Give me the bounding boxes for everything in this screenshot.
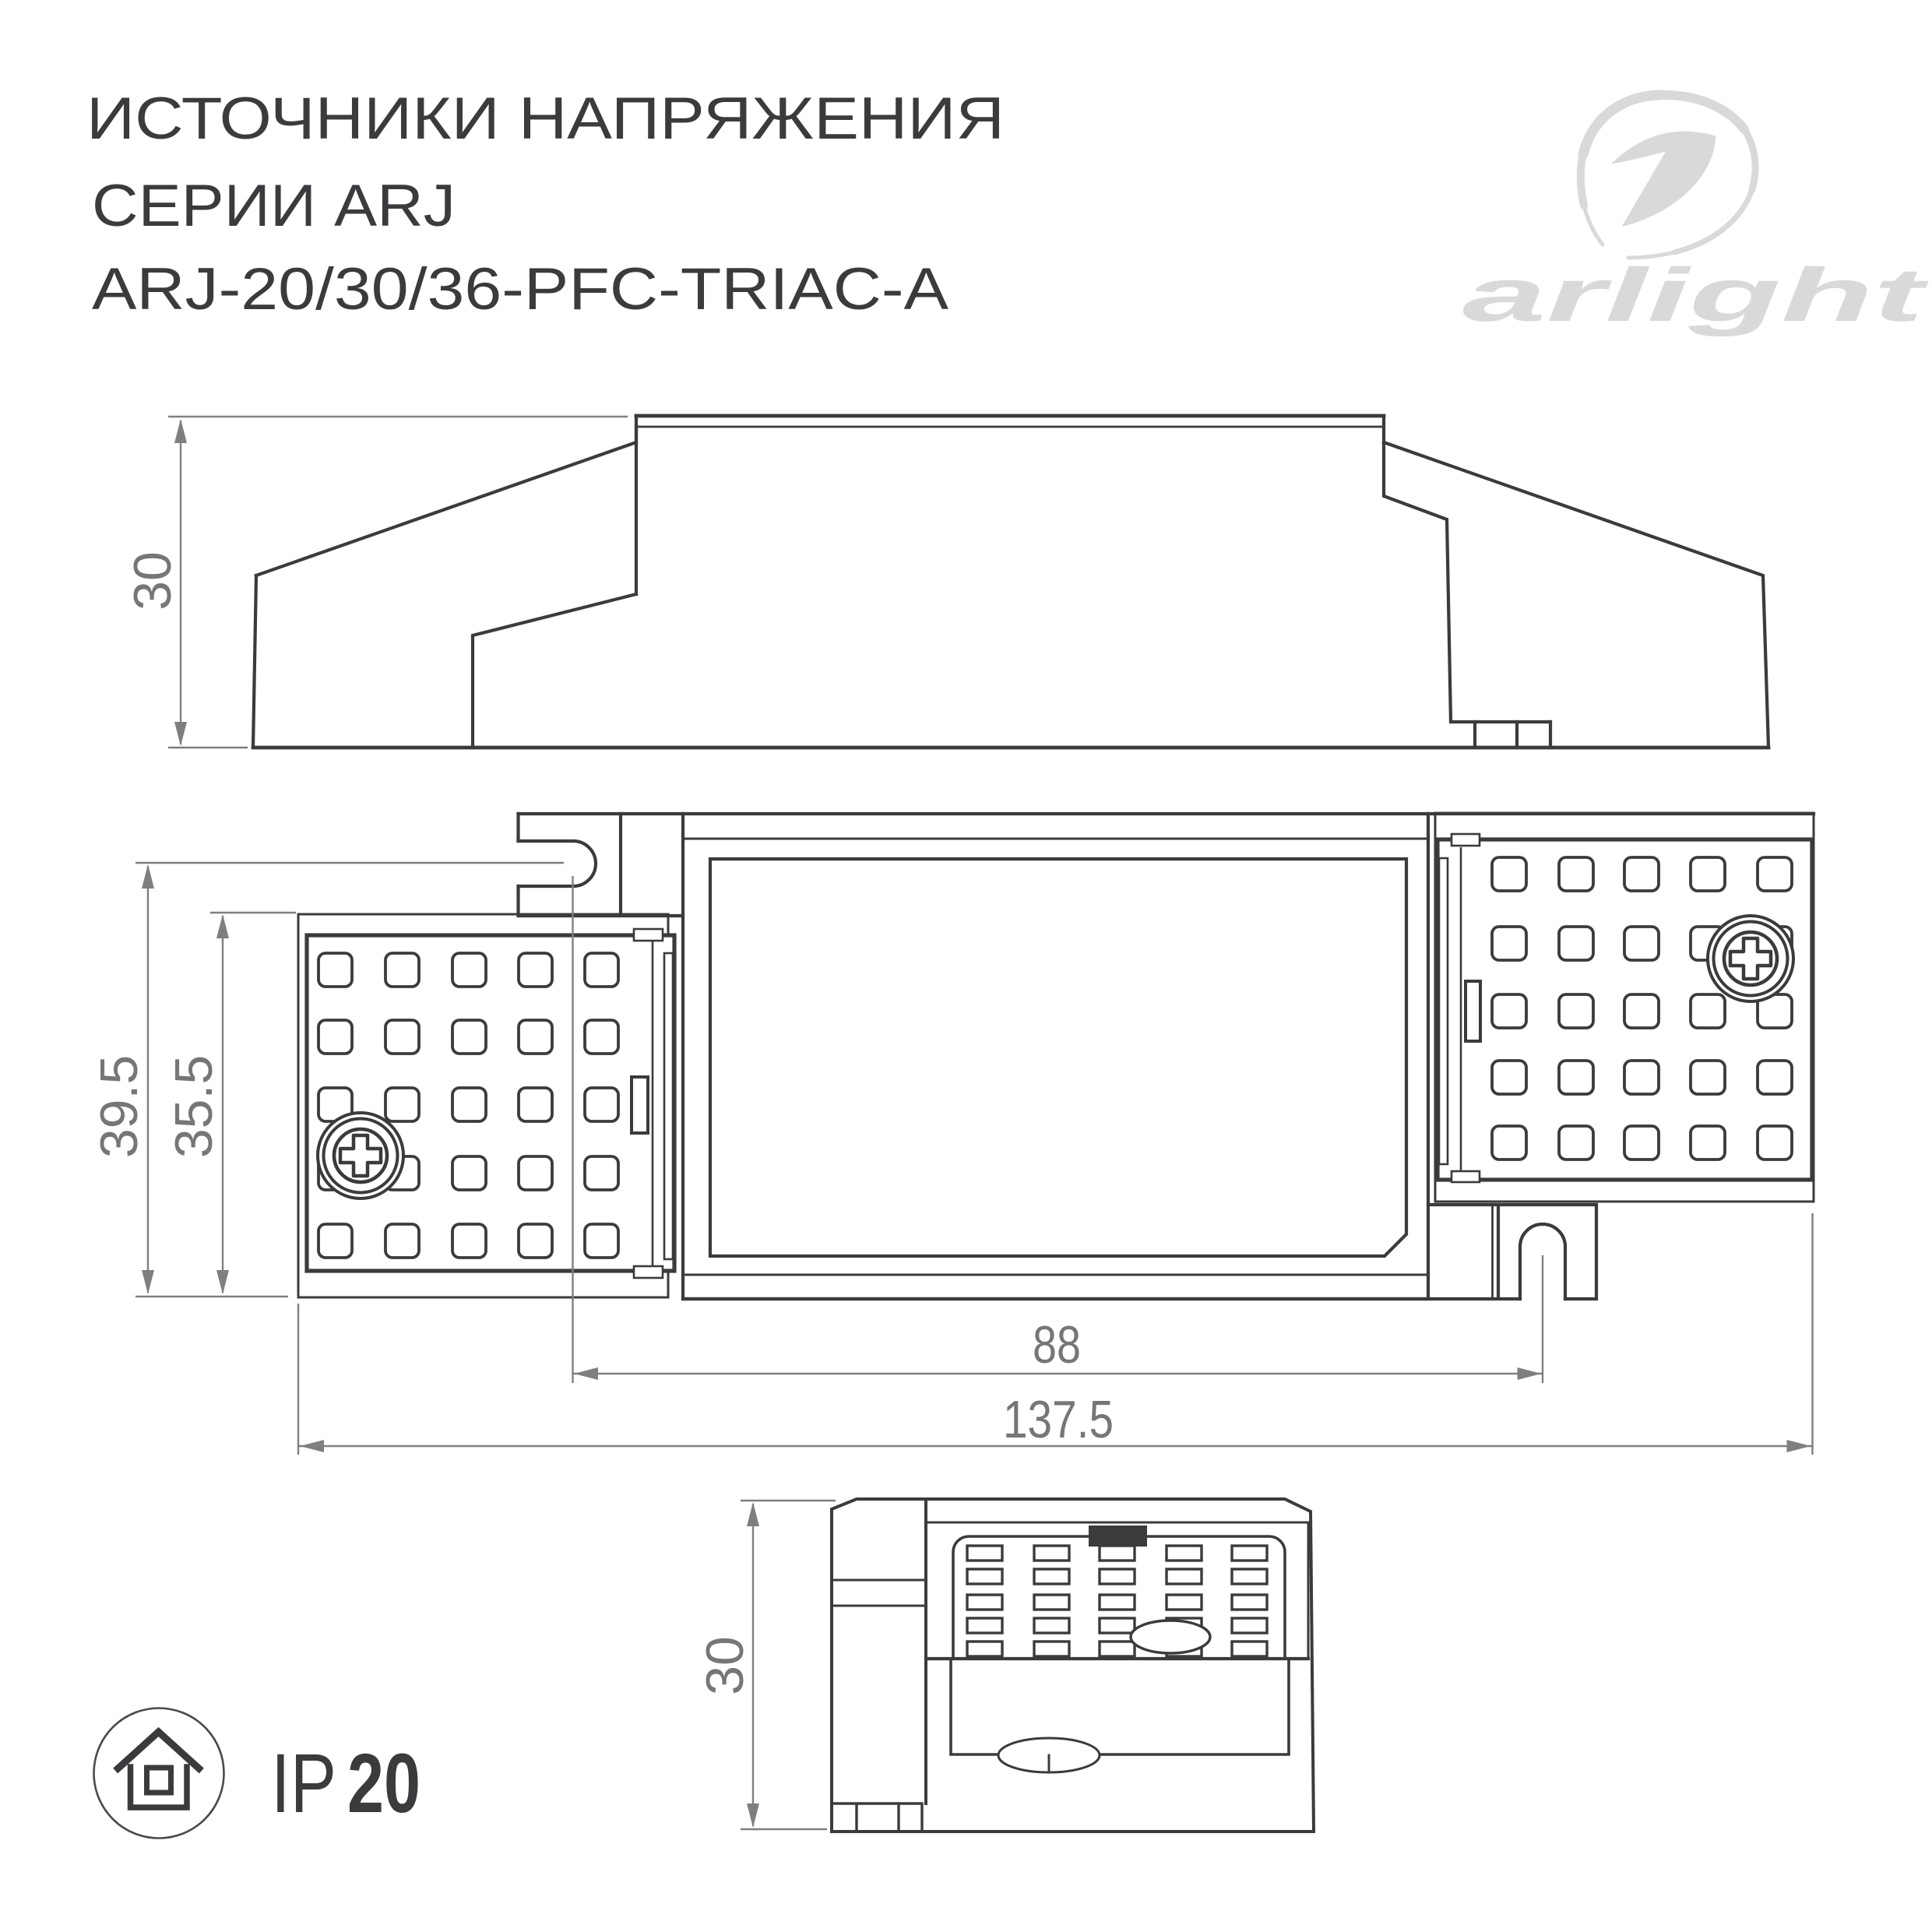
svg-text:39.5: 39.5 [90,1055,149,1158]
svg-text:88: 88 [1033,1315,1081,1374]
svg-text:35.5: 35.5 [164,1055,223,1158]
svg-text:IP: IP [271,1736,336,1830]
svg-text:30: 30 [695,1636,755,1695]
svg-text:arlight: arlight [1462,252,1929,337]
svg-text:137.5: 137.5 [1003,1390,1114,1449]
svg-text:ARJ-20/30/36-PFC-TRIAC-A: ARJ-20/30/36-PFC-TRIAC-A [92,256,948,322]
svg-text:20: 20 [347,1736,421,1830]
svg-text:30: 30 [123,551,182,611]
svg-text:СЕРИИ ARJ: СЕРИИ ARJ [92,173,456,239]
svg-text:ИСТОЧНИКИ НАПРЯЖЕНИЯ: ИСТОЧНИКИ НАПРЯЖЕНИЯ [86,86,1005,152]
